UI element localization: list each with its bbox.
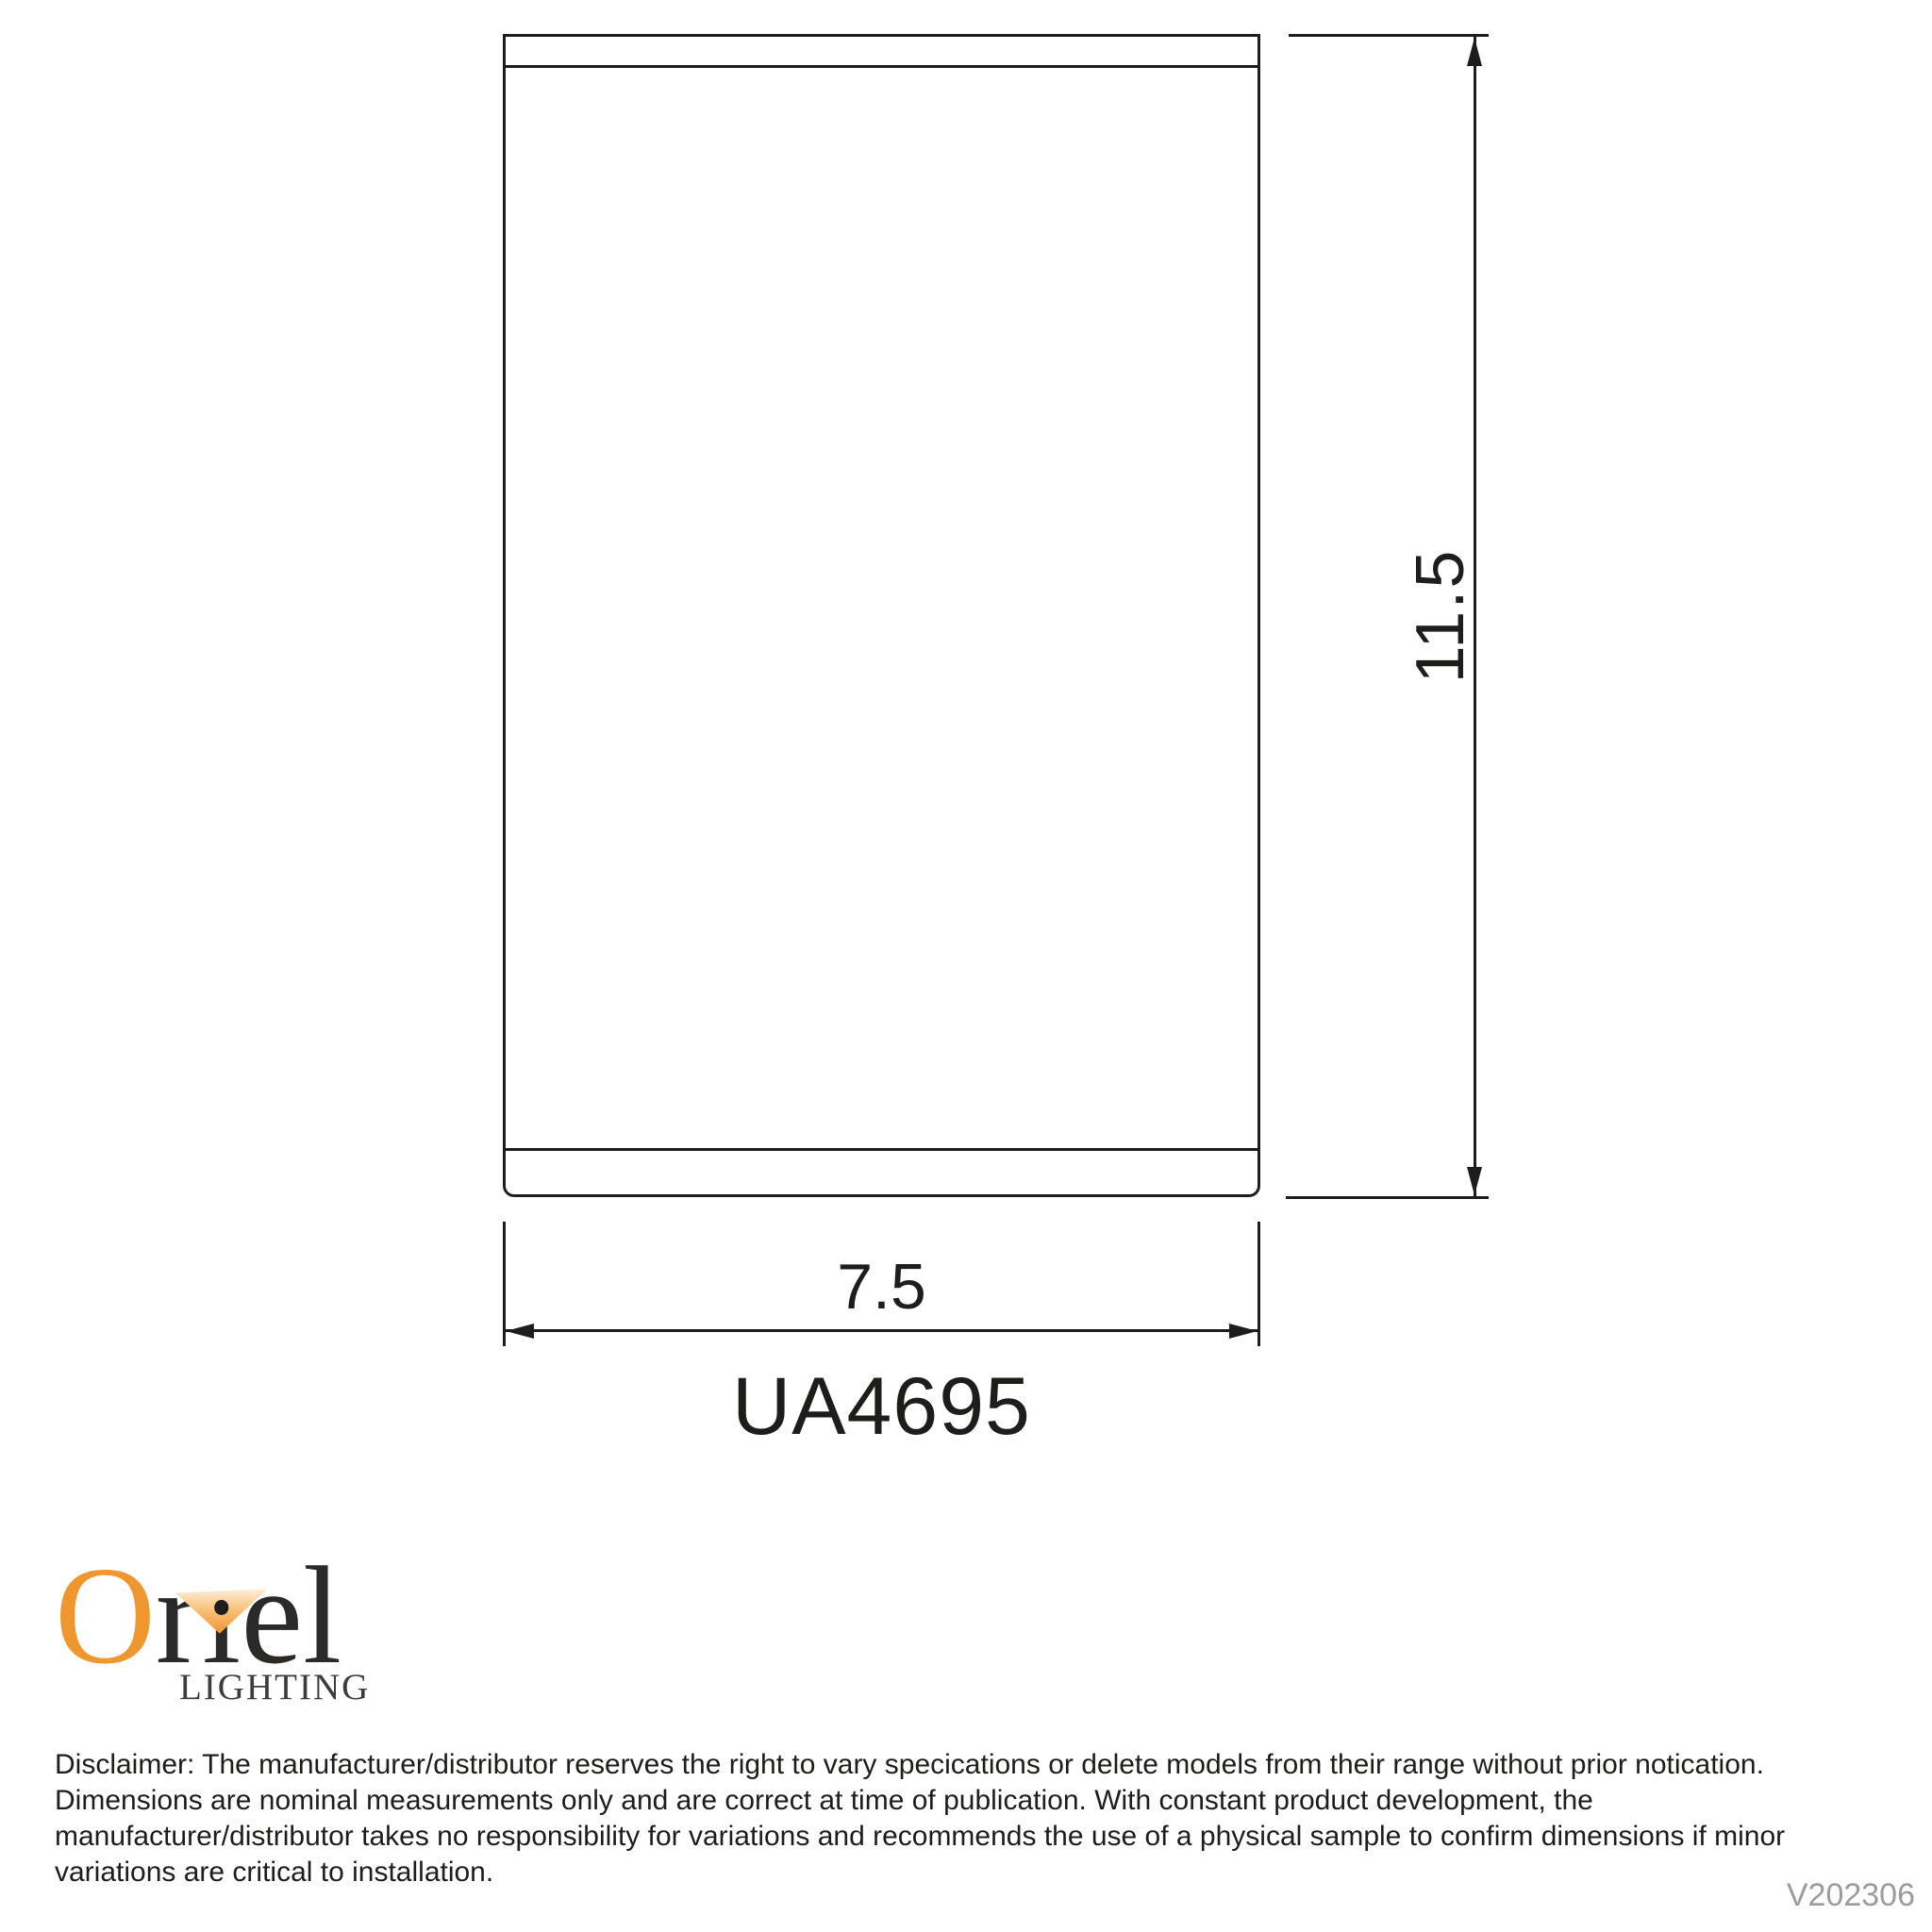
top-rim-line [505,65,1258,68]
height-arrow-up-icon [1467,38,1482,66]
version-label: V202306 [1787,1877,1915,1914]
disclaimer-line-2: Dimensions are nominal measurements only… [55,1783,1785,1819]
height-dimension-value: 11.5 [1402,549,1479,684]
logo-letter-o: O [55,1539,156,1693]
width-dimension-value: 7.5 [503,1253,1260,1321]
spec-sheet-page: 11.5 7.5 UA4695 Orıel LIGHTING Disclaime… [0,0,1932,1932]
height-extension-line-bottom [1286,1196,1489,1199]
disclaimer-line-4: variations are critical to installation. [55,1855,1785,1890]
height-arrow-down-icon [1467,1167,1482,1195]
disclaimer-text: Disclaimer: The manufacturer/distributor… [55,1747,1785,1890]
disclaimer-line-1: Disclaimer: The manufacturer/distributor… [55,1747,1785,1783]
product-code: UA4695 [503,1364,1260,1449]
brand-subtext: LIGHTING [179,1666,370,1708]
height-extension-line-top [1289,34,1489,37]
lamp-bulb-dot-icon [214,1600,229,1615]
width-dimension-line [506,1329,1257,1332]
bottom-rim-line [505,1148,1258,1151]
width-arrow-right-icon [1229,1324,1257,1339]
width-arrow-left-icon [506,1324,534,1339]
disclaimer-line-3: manufacturer/distributor takes no respon… [55,1819,1785,1855]
product-outline [503,34,1260,1197]
